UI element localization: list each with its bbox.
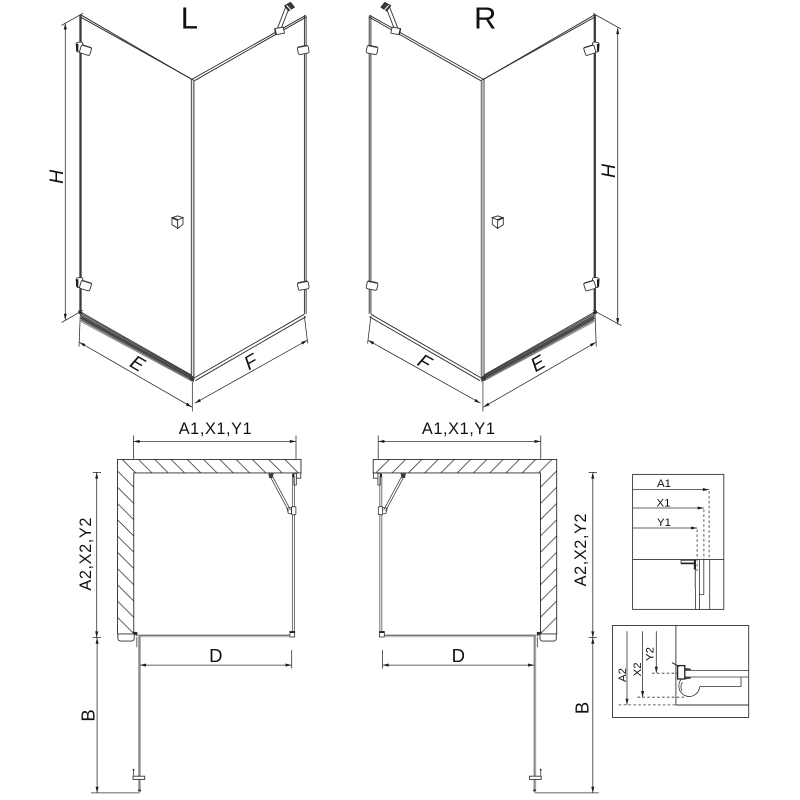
svg-text:Y1: Y1 xyxy=(657,517,671,529)
svg-text:A1,X1,Y1: A1,X1,Y1 xyxy=(422,420,496,438)
svg-text:Y2: Y2 xyxy=(645,647,657,661)
svg-text:A2: A2 xyxy=(617,668,629,682)
svg-text:F: F xyxy=(240,349,262,375)
svg-text:E: E xyxy=(527,351,550,377)
svg-text:A1,X1,Y1: A1,X1,Y1 xyxy=(179,420,253,438)
svg-text:A2,X2,Y2: A2,X2,Y2 xyxy=(77,517,95,591)
svg-text:H: H xyxy=(46,169,68,184)
svg-text:R: R xyxy=(474,1,496,36)
svg-text:D: D xyxy=(452,645,465,666)
svg-text:F: F xyxy=(414,350,436,376)
svg-text:D: D xyxy=(209,645,222,666)
svg-text:A1: A1 xyxy=(657,478,671,490)
svg-text:E: E xyxy=(126,351,149,377)
svg-text:L: L xyxy=(181,1,198,36)
svg-text:B: B xyxy=(572,702,593,714)
svg-text:H: H xyxy=(598,163,620,178)
svg-text:X2: X2 xyxy=(632,662,644,676)
svg-text:B: B xyxy=(78,709,99,721)
svg-text:A2,X2,Y2: A2,X2,Y2 xyxy=(572,513,590,587)
svg-text:X1: X1 xyxy=(657,498,671,510)
